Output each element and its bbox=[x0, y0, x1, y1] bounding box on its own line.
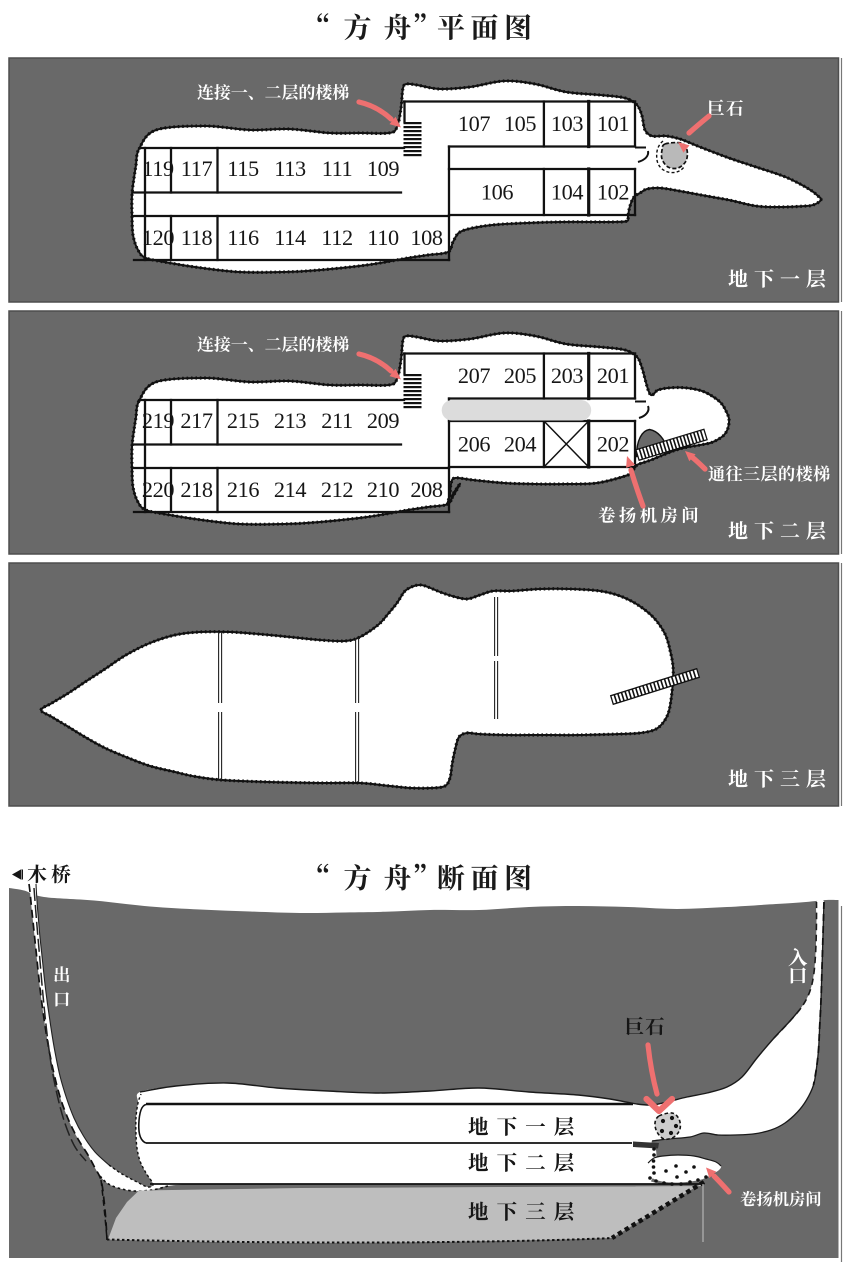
svg-text:209: 209 bbox=[367, 408, 399, 433]
svg-text:112: 112 bbox=[321, 225, 352, 250]
svg-text:201: 201 bbox=[597, 363, 629, 388]
svg-text:211: 211 bbox=[321, 408, 352, 433]
svg-text:217: 217 bbox=[180, 408, 212, 433]
svg-text:110: 110 bbox=[367, 225, 399, 250]
svg-text:207: 207 bbox=[458, 363, 490, 388]
svg-text:205: 205 bbox=[504, 363, 536, 388]
svg-text:111: 111 bbox=[322, 156, 353, 181]
svg-text:118: 118 bbox=[181, 225, 213, 250]
svg-text:101: 101 bbox=[597, 111, 629, 136]
svg-text:107: 107 bbox=[458, 111, 490, 136]
svg-text:109: 109 bbox=[367, 156, 399, 181]
svg-text:108: 108 bbox=[410, 225, 442, 250]
svg-text:105: 105 bbox=[504, 111, 536, 136]
svg-text:212: 212 bbox=[321, 477, 353, 502]
svg-text:216: 216 bbox=[227, 477, 259, 502]
svg-text:116: 116 bbox=[227, 225, 259, 250]
svg-text:218: 218 bbox=[180, 477, 212, 502]
svg-text:210: 210 bbox=[367, 477, 399, 502]
svg-text:203: 203 bbox=[551, 363, 583, 388]
svg-text:106: 106 bbox=[481, 180, 513, 205]
svg-text:213: 213 bbox=[274, 408, 306, 433]
svg-text:215: 215 bbox=[227, 408, 259, 433]
svg-text:206: 206 bbox=[458, 432, 490, 457]
svg-text:114: 114 bbox=[274, 225, 306, 250]
svg-text:214: 214 bbox=[274, 477, 306, 502]
svg-text:104: 104 bbox=[551, 180, 583, 205]
svg-text:220: 220 bbox=[142, 477, 174, 502]
svg-text:103: 103 bbox=[551, 111, 583, 136]
svg-text:208: 208 bbox=[410, 477, 442, 502]
svg-text:219: 219 bbox=[142, 408, 174, 433]
svg-text:115: 115 bbox=[227, 156, 259, 181]
svg-text:202: 202 bbox=[597, 432, 629, 457]
svg-text:113: 113 bbox=[274, 156, 306, 181]
svg-text:117: 117 bbox=[181, 156, 213, 181]
svg-text:102: 102 bbox=[597, 180, 629, 205]
svg-text:120: 120 bbox=[142, 225, 174, 250]
svg-text:204: 204 bbox=[504, 432, 536, 457]
svg-text:119: 119 bbox=[142, 156, 174, 181]
